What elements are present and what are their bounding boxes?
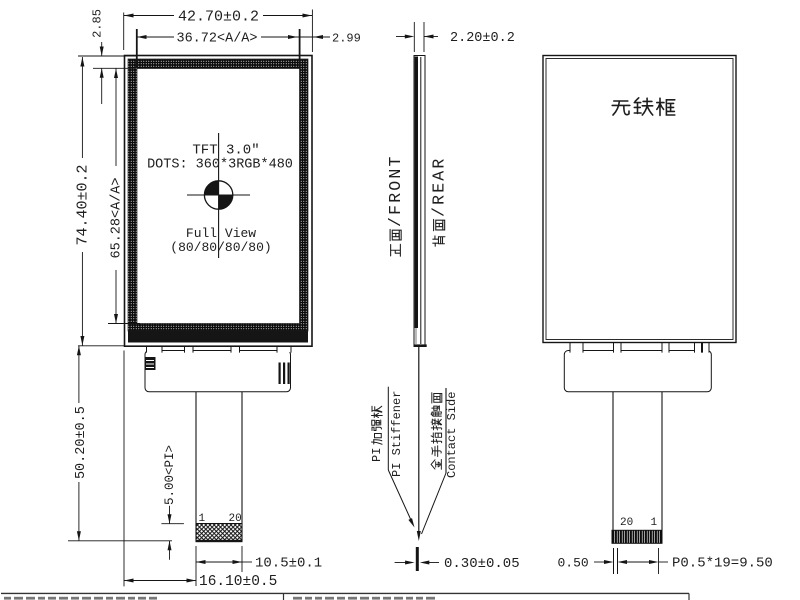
svg-text:20: 20 bbox=[620, 517, 633, 529]
svg-text:0.30±0.05: 0.30±0.05 bbox=[444, 556, 520, 572]
svg-text:Full View: Full View bbox=[186, 226, 256, 241]
svg-text:5.00<PI>: 5.00<PI> bbox=[163, 445, 177, 505]
svg-text:1: 1 bbox=[651, 517, 658, 529]
svg-text:/FRONT: /FRONT bbox=[386, 154, 405, 227]
svg-text:P0.5*19=9.50: P0.5*19=9.50 bbox=[672, 556, 773, 572]
svg-text:2.99: 2.99 bbox=[332, 32, 361, 46]
svg-text:(80/80/80/80): (80/80/80/80) bbox=[170, 240, 271, 255]
svg-text:2.85: 2.85 bbox=[91, 9, 105, 38]
svg-text:/REAR: /REAR bbox=[429, 156, 448, 217]
svg-text:DOTS: 360*3RGB*480: DOTS: 360*3RGB*480 bbox=[147, 158, 293, 173]
svg-text:0.50: 0.50 bbox=[558, 556, 589, 571]
svg-text:Contact Side: Contact Side bbox=[445, 392, 459, 478]
svg-text:42.70±0.2: 42.70±0.2 bbox=[178, 9, 259, 26]
svg-text:50.20±0.5: 50.20±0.5 bbox=[74, 406, 89, 479]
svg-text:PI Stiffener: PI Stiffener bbox=[390, 391, 404, 477]
svg-text:16.10±0.5: 16.10±0.5 bbox=[199, 574, 277, 590]
svg-text:74.40±0.2: 74.40±0.2 bbox=[74, 164, 91, 245]
svg-text:PI: PI bbox=[370, 448, 384, 462]
svg-text:10.5±0.1: 10.5±0.1 bbox=[255, 556, 322, 572]
svg-text:65.28<A/A>: 65.28<A/A> bbox=[110, 177, 125, 258]
svg-text:TFT 3.0": TFT 3.0" bbox=[192, 143, 259, 159]
svg-text:20: 20 bbox=[229, 513, 242, 525]
svg-text:1: 1 bbox=[199, 513, 206, 525]
svg-text:36.72<A/A>: 36.72<A/A> bbox=[176, 32, 257, 47]
svg-text:2.20±0.2: 2.20±0.2 bbox=[450, 31, 515, 46]
